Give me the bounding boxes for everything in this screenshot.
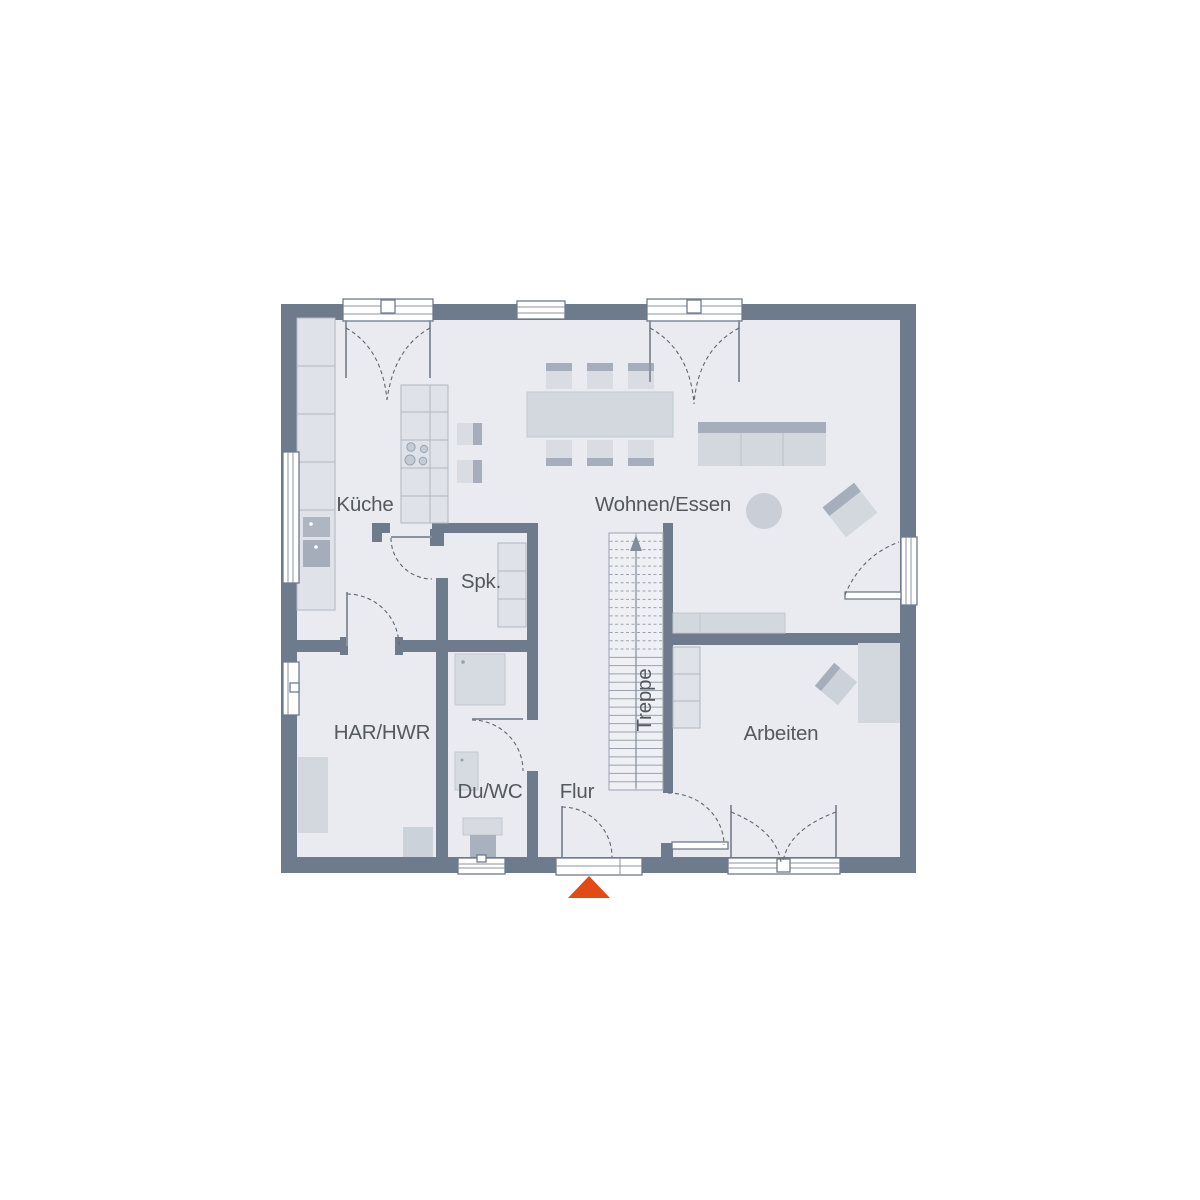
- utility-unit: [298, 757, 328, 833]
- room-label-kueche: Küche: [336, 493, 393, 516]
- kitchen-sink: [303, 517, 330, 537]
- room-label-har: HAR/HWR: [334, 721, 431, 744]
- kitchen-counter-left: [297, 318, 335, 610]
- entrance-marker: [568, 876, 610, 898]
- floorplan-canvas: Küche Wohnen/Essen Spk. HAR/HWR Du/WC Fl…: [0, 0, 1200, 1200]
- room-label-flur: Flur: [560, 780, 595, 803]
- room-label-spk: Spk.: [461, 570, 501, 593]
- office-shelf: [673, 647, 700, 728]
- pantry-shelves: [498, 543, 526, 627]
- desk: [858, 643, 900, 723]
- side-table: [746, 493, 782, 529]
- sideboard: [673, 613, 785, 633]
- window-duwc-bottom: [458, 855, 505, 874]
- window-har-left: [283, 662, 299, 715]
- window-top: [517, 301, 565, 319]
- room-label-arbeiten: Arbeiten: [744, 722, 819, 745]
- kitchen-appliance: [303, 540, 330, 567]
- room-label-wohnen: Wohnen/Essen: [595, 493, 731, 516]
- kitchen-island: [401, 385, 448, 523]
- sofa: [698, 422, 826, 466]
- floorplan-page: Küche Wohnen/Essen Spk. HAR/HWR Du/WC Fl…: [0, 0, 1200, 1200]
- stairs: [609, 533, 663, 790]
- room-label-treppe: Treppe: [633, 669, 656, 732]
- utility-unit-2: [403, 827, 433, 857]
- dining-table: [527, 392, 673, 437]
- wc-tank: [470, 835, 496, 857]
- window-kitchen-left: [283, 452, 299, 583]
- floor: [283, 306, 914, 871]
- room-label-duwc: Du/WC: [457, 780, 522, 803]
- wc-seat: [463, 818, 502, 835]
